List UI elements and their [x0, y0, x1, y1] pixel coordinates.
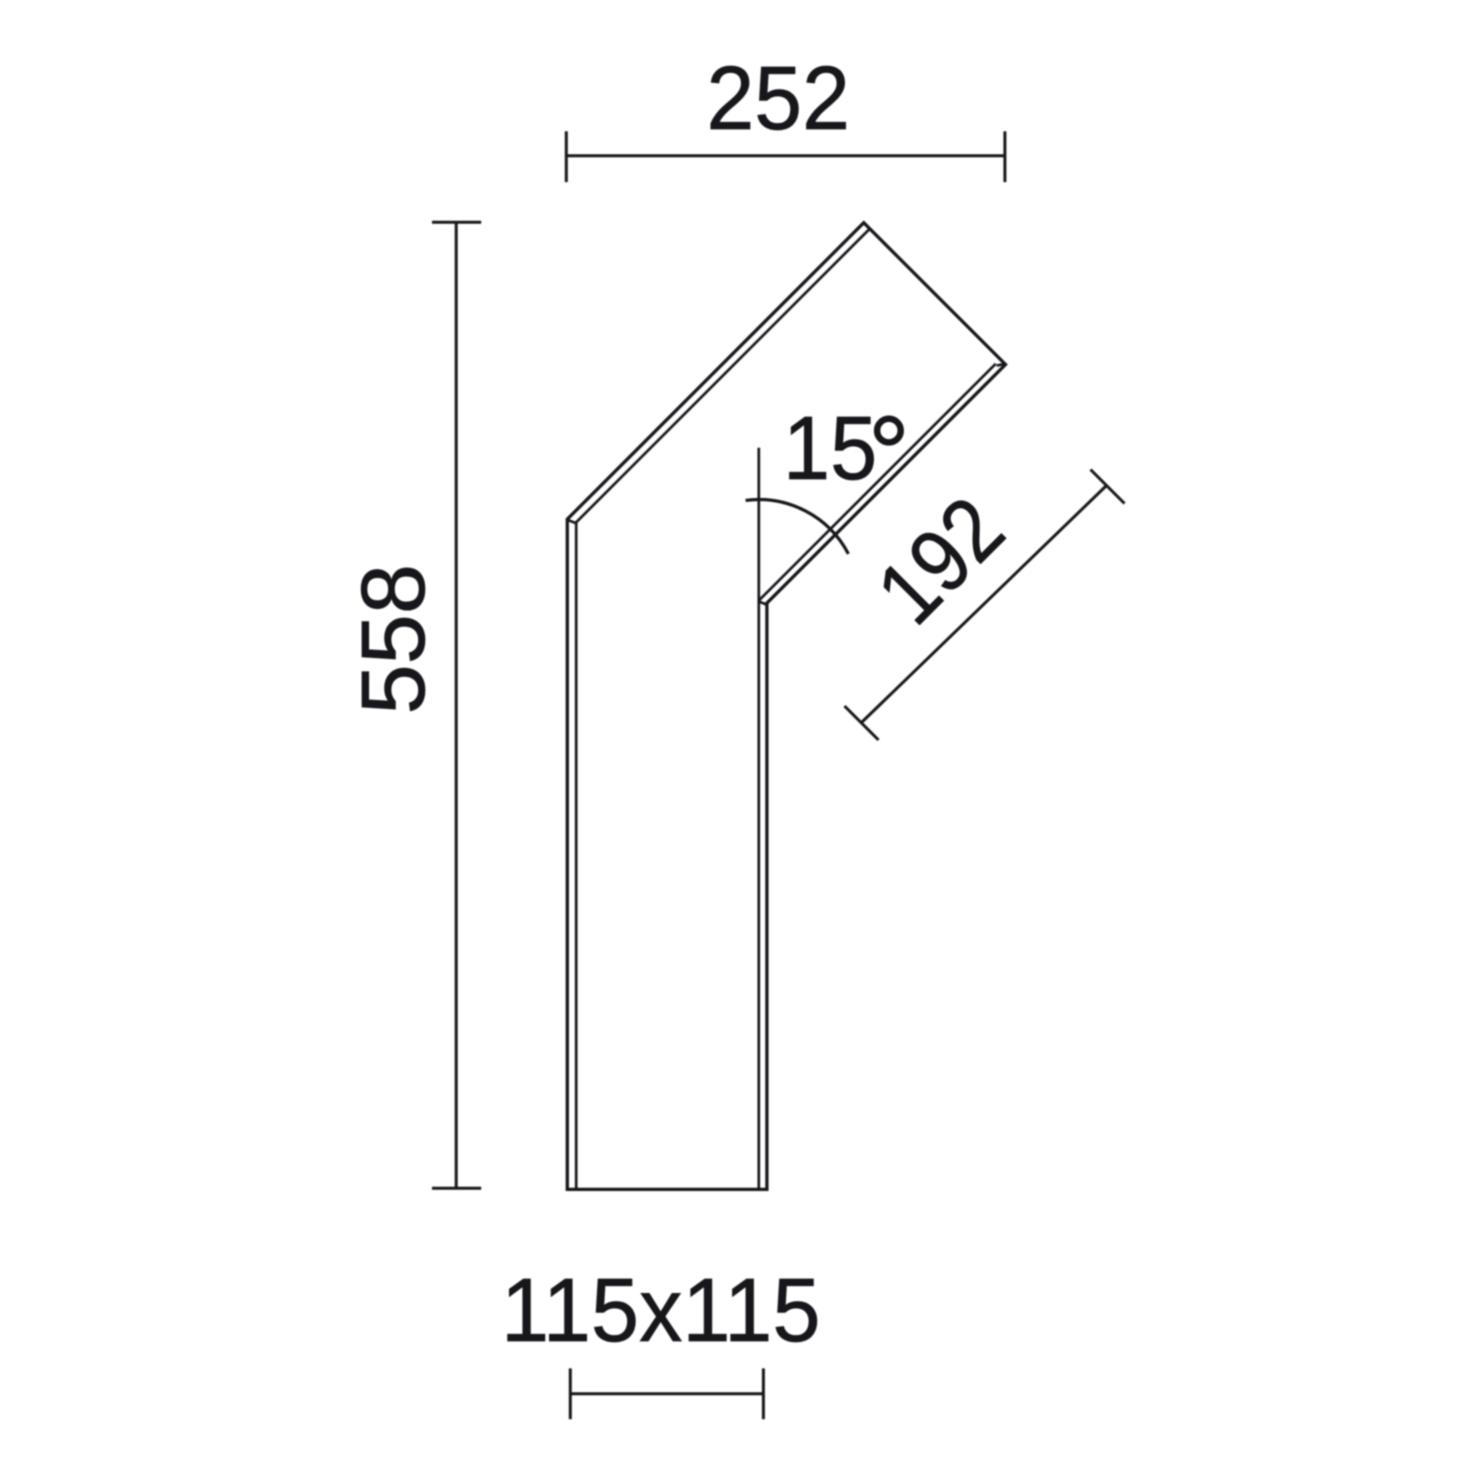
svg-text:252: 252: [707, 49, 850, 149]
svg-text:15: 15: [783, 399, 877, 499]
svg-text:115x115: 115x115: [501, 1261, 821, 1361]
svg-text:558: 558: [344, 564, 444, 715]
